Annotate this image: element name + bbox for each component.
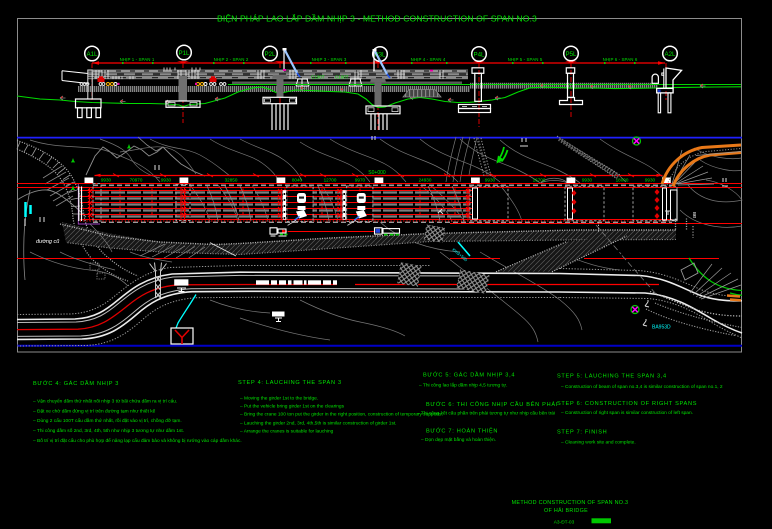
svg-text:– Bring the crane 100 ton put: – Bring the crane 100 ton put the girder… <box>240 412 443 418</box>
svg-text:NHỊP 6 - SPAN 6: NHỊP 6 - SPAN 6 <box>603 57 638 62</box>
svg-text:P4L: P4L <box>473 51 485 58</box>
svg-text:STEP 6: CONSTRUCTION OF RIGHT: STEP 6: CONSTRUCTION OF RIGHT SPANS <box>557 401 697 407</box>
svg-text:– Thi công dầm số 2nd, 3rd, 4t: – Thi công dầm số 2nd, 3rd, 4th, 5th như… <box>33 428 184 434</box>
svg-text:A2L: A2L <box>664 51 676 58</box>
svg-text:– Construction of beam of span: – Construction of beam of span no.3,4 is… <box>561 384 723 390</box>
svg-text:9930: 9930 <box>645 177 656 182</box>
svg-text:BĐ: BĐ <box>692 212 697 219</box>
svg-text:P2L: P2L <box>264 51 276 58</box>
svg-text:BƯỚC 4: GÁC DẦM NHỊP 3: BƯỚC 4: GÁC DẦM NHỊP 3 <box>33 380 119 387</box>
svg-text:BƯỚC 6: THI CÔNG NHỊP CẦU BÊN: BƯỚC 6: THI CÔNG NHỊP CẦU BÊN PHẢI <box>426 400 558 408</box>
svg-text:16700: 16700 <box>533 177 546 182</box>
svg-text:32850: 32850 <box>225 177 238 182</box>
svg-text:P5L: P5L <box>565 51 577 58</box>
svg-text:– Đặt xe chở dầm đứng vị trí t: – Đặt xe chở dầm đứng vị trí trên đường … <box>33 407 156 414</box>
svg-text:NHỊP 3 - SPAN 3: NHỊP 3 - SPAN 3 <box>312 57 347 62</box>
svg-text:A1L: A1L <box>86 51 98 58</box>
svg-text:9930: 9930 <box>161 177 172 182</box>
svg-text:NHỊP 5 - SPAN 5: NHỊP 5 - SPAN 5 <box>508 57 543 62</box>
svg-text:C100T: C100T <box>311 75 325 80</box>
svg-text:P1L: P1L <box>178 50 190 57</box>
svg-text:OF HẢI BRIDGE: OF HẢI BRIDGE <box>544 507 588 514</box>
svg-text:– Arrange the cranes is suitab: – Arrange the cranes is suitable for lau… <box>240 428 334 434</box>
svg-text:24930: 24930 <box>419 177 432 182</box>
svg-text:– Thi công lao lắp dầm nhịp 4,: – Thi công lao lắp dầm nhịp 4,5 tương tự… <box>419 382 507 389</box>
svg-text:18000: 18000 <box>616 177 629 182</box>
svg-text:STEP 7: FINISH: STEP 7: FINISH <box>557 430 607 436</box>
svg-text:9970: 9970 <box>355 177 366 182</box>
svg-text:– Cleaning work site and compl: – Cleaning work site and complete. <box>561 440 636 446</box>
svg-text:– Moving the girder 1st to the: – Moving the girder 1st to the bridge. <box>240 396 318 402</box>
svg-text:C100T: C100T <box>335 75 349 80</box>
svg-text:– Put the vehicle bring girder: – Put the vehicle bring girder 1st on th… <box>240 404 345 410</box>
svg-text:NHỊP 4 - SPAN 4: NHỊP 4 - SPAN 4 <box>411 57 446 62</box>
svg-text:BƯỚC 7: HOÀN THIỆN: BƯỚC 7: HOÀN THIỆN <box>426 427 498 435</box>
svg-text:8040: 8040 <box>292 177 303 182</box>
svg-text:– Construction of right span i: – Construction of right span is similar … <box>561 410 693 416</box>
svg-text:NHỊP 1 - SPAN 1: NHỊP 1 - SPAN 1 <box>120 57 155 62</box>
svg-text:12700: 12700 <box>324 177 337 182</box>
svg-text:BƯỚC 5: GÁC DẦM NHỊP 3,4: BƯỚC 5: GÁC DẦM NHỊP 3,4 <box>423 372 515 379</box>
svg-text:70970: 70970 <box>130 177 143 182</box>
svg-text:STEP 4: LAUCHING THE SPAN 3: STEP 4: LAUCHING THE SPAN 3 <box>238 380 342 386</box>
svg-text:đường cũ: đường cũ <box>36 239 59 245</box>
svg-text:– Thi công kết cấu phần trên p: – Thi công kết cấu phần trên phải tương … <box>417 411 555 417</box>
svg-text:9930: 9930 <box>582 177 593 182</box>
svg-text:A3-ĐT-03: A3-ĐT-03 <box>554 520 575 526</box>
svg-text:BIỆN PHÁP LAO LẮP DẦM NHỊP 3 -: BIỆN PHÁP LAO LẮP DẦM NHỊP 3 - METHOD CO… <box>217 14 537 24</box>
svg-text:– Dùng 2 cẩu 100T cẩu dầm thứ: – Dùng 2 cẩu 100T cẩu dầm thứ nhất, rồi … <box>33 417 182 424</box>
svg-text:S0+000: S0+000 <box>368 170 386 176</box>
svg-text:– Lauching the girder 2nd, 3rd: – Lauching the girder 2nd, 3rd, 4th,5th … <box>240 420 397 426</box>
svg-text:STEP 5: LAUCHING THE SPAN 3,4: STEP 5: LAUCHING THE SPAN 3,4 <box>557 374 667 380</box>
svg-text:– Bố trí vị trí đặt cẩu cho ph: – Bố trí vị trí đặt cẩu cho phù hợp để n… <box>33 437 242 444</box>
svg-text:9930: 9930 <box>101 177 112 182</box>
svg-text:– Vận chuyển dầm thứ nhất nối: – Vận chuyển dầm thứ nhất nối nhịp 3 từ … <box>33 398 177 405</box>
svg-text:BA953D: BA953D <box>652 325 671 331</box>
svg-text:– Dọn dẹp mặt bằng và hoàn thi: – Dọn dẹp mặt bằng và hoàn thiện. <box>421 436 496 443</box>
svg-text:NHỊP 2 - SPAN 2: NHỊP 2 - SPAN 2 <box>214 57 249 62</box>
svg-text:9930: 9930 <box>485 177 496 182</box>
svg-text:METHOD CONSTRUCTION OF SPAN NO: METHOD CONSTRUCTION OF SPAN NO.3 <box>512 500 629 506</box>
